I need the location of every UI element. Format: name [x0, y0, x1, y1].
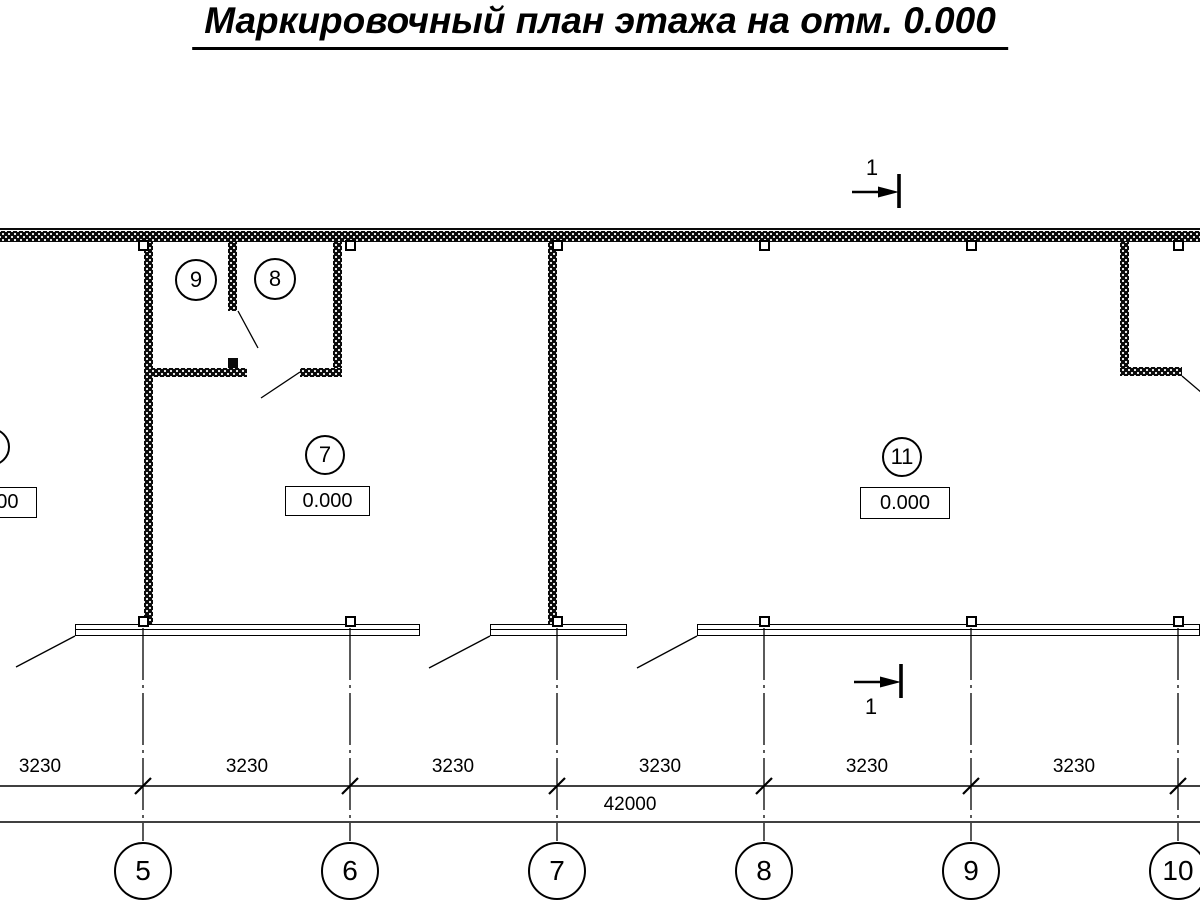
room-circle-11: 11: [882, 437, 922, 477]
dim-label-total: 42000: [595, 794, 665, 816]
wall-room11-leg: [1120, 367, 1182, 376]
door-jamb-stub: [228, 358, 238, 368]
room-number: 9: [190, 267, 202, 293]
axis-number: 9: [963, 855, 979, 887]
door-swing-lines: [16, 311, 1200, 668]
axis-bubble-10: 10: [1149, 842, 1200, 900]
axis-bubble-8: 8: [735, 842, 793, 900]
elevation-value: 0.000: [0, 491, 19, 514]
column-marker-top-10: [1173, 240, 1184, 251]
section-arrow-bottom-icon: [854, 664, 901, 698]
axis-number: 5: [135, 855, 151, 887]
dim-label-5: 3230: [832, 756, 902, 778]
room-number: 8: [269, 266, 281, 292]
axis-number: 10: [1162, 855, 1193, 887]
axis-bubble-6: 6: [321, 842, 379, 900]
partition-room9-room8: [228, 242, 237, 311]
door-swing-entry-1: [429, 636, 490, 668]
column-marker-bottom-10: [1173, 616, 1184, 627]
top-exterior-wall: [0, 231, 1200, 242]
axis-number: 8: [756, 855, 772, 887]
dim-label-2: 3230: [212, 756, 282, 778]
wall-room8-leg: [300, 368, 342, 377]
elevation-value: 0.000: [880, 492, 930, 515]
column-marker-bottom-9: [966, 616, 977, 627]
wall-room9-bottom: [144, 368, 247, 377]
floor-plan-drawing: Маркировочный план этажа на отм. 0.000: [0, 0, 1200, 900]
axis-bubble-7: 7: [528, 842, 586, 900]
column-marker-top-7: [552, 240, 563, 251]
room-circle-8: 8: [254, 258, 296, 300]
window-band-3: [697, 624, 1200, 636]
wall-room8-right: [333, 242, 342, 377]
door-swing-room9: [238, 311, 258, 348]
column-marker-bottom-8: [759, 616, 770, 627]
column-marker-top-9: [966, 240, 977, 251]
wall-axis-5: [144, 242, 153, 625]
door-swing-left-entry: [16, 636, 75, 667]
room-circle-7: 7: [305, 435, 345, 475]
window-band-1: [75, 624, 420, 636]
dim-label-1: 3230: [5, 756, 75, 778]
room-number: 11: [891, 444, 914, 470]
column-marker-bottom-5: [138, 616, 149, 627]
section-label-bottom: 1: [856, 694, 886, 720]
axis-number: 7: [549, 855, 565, 887]
axis-bubble-9: 9: [942, 842, 1000, 900]
column-marker-bottom-6: [345, 616, 356, 627]
column-marker-bottom-7: [552, 616, 563, 627]
axis-bubble-5: 5: [114, 842, 172, 900]
dim-label-3: 3230: [418, 756, 488, 778]
axis-number: 6: [342, 855, 358, 887]
door-swing-entry-2: [637, 636, 697, 668]
elevation-box-room11: 0.000: [860, 487, 950, 519]
elevation-value: 0.000: [302, 490, 352, 513]
section-label-top: 1: [857, 155, 887, 181]
column-marker-top-5: [138, 240, 149, 251]
dim-label-4: 3230: [625, 756, 695, 778]
line-work-layer: [0, 0, 1200, 900]
door-swing-room11: [1182, 376, 1200, 393]
room-number: 7: [319, 442, 331, 468]
dim-label-6: 3230: [1039, 756, 1109, 778]
room-circle-9: 9: [175, 259, 217, 301]
elevation-box-partial-left: 0.000: [0, 487, 37, 518]
column-marker-top-8: [759, 240, 770, 251]
wall-axis-7: [548, 242, 557, 625]
top-wall-outline: [0, 228, 1200, 230]
door-swing-room8: [261, 372, 300, 398]
column-marker-top-6: [345, 240, 356, 251]
wall-room11-right: [1120, 242, 1129, 375]
elevation-box-room7: 0.000: [285, 486, 370, 516]
